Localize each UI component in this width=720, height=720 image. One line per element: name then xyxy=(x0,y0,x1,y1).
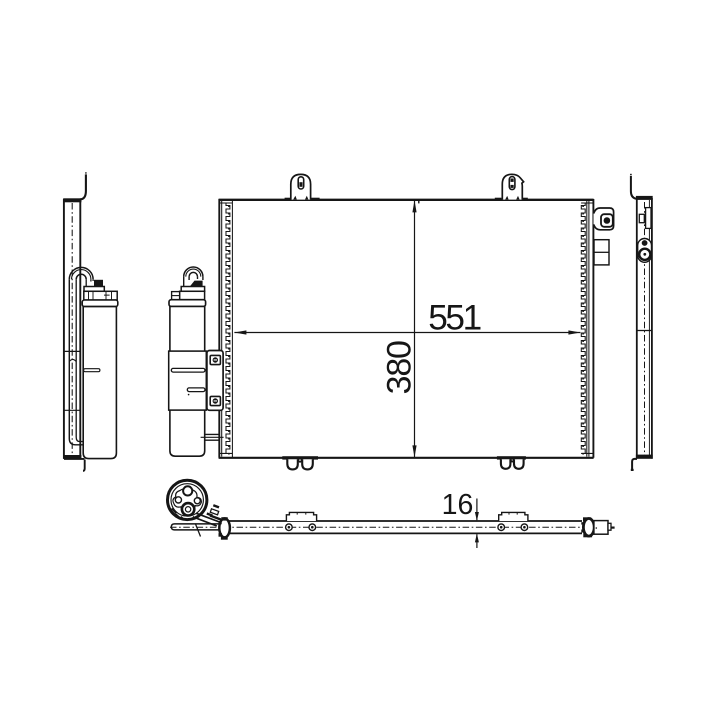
svg-text:380: 380 xyxy=(380,341,418,394)
svg-text:16: 16 xyxy=(442,489,474,521)
svg-text:551: 551 xyxy=(428,298,480,337)
